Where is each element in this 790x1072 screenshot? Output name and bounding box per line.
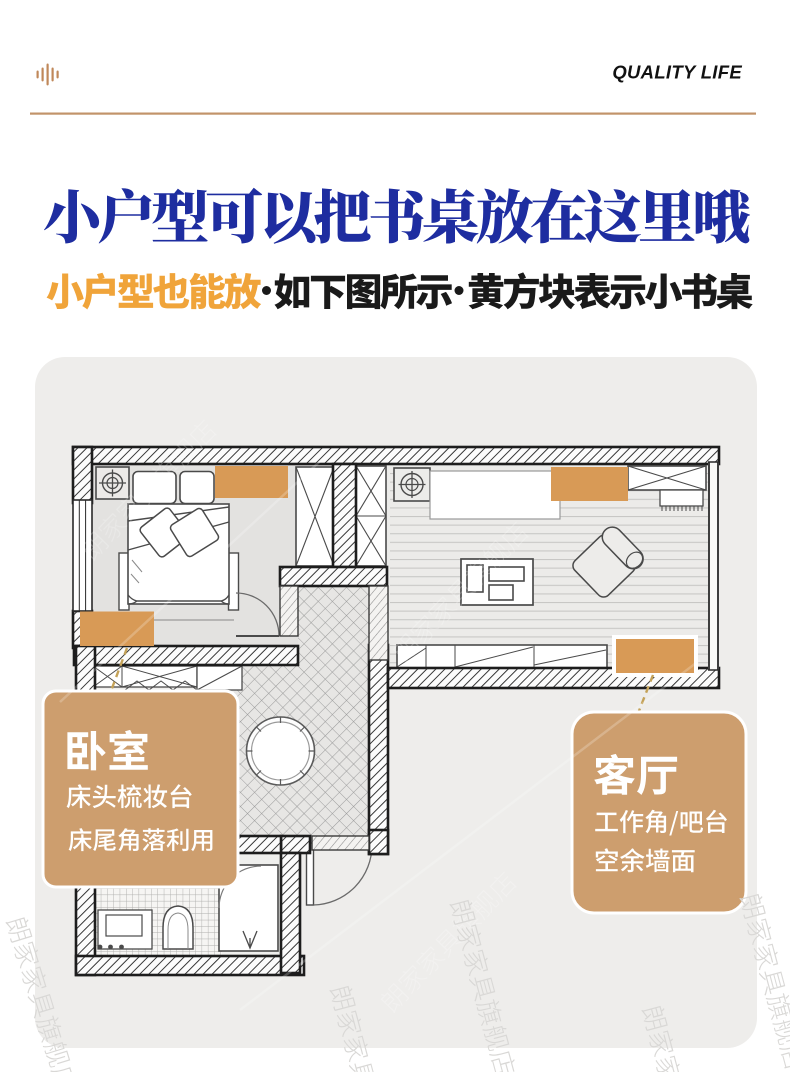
svg-text:QUALITY LIFE: QUALITY LIFE — [612, 62, 742, 83]
